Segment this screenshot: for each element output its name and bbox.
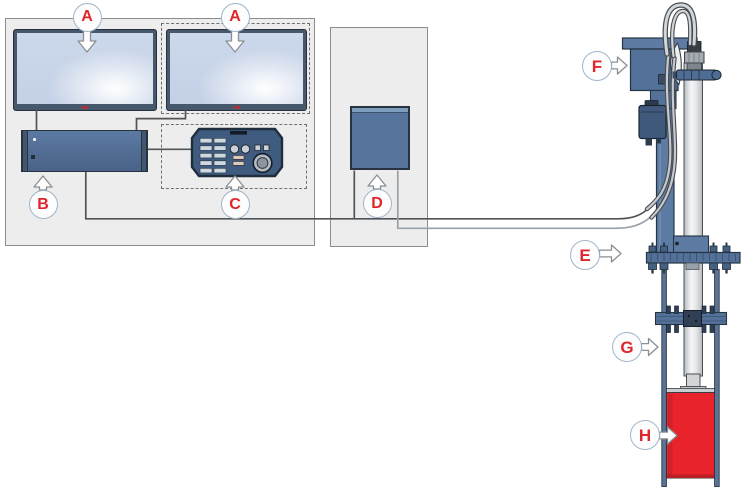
control-box [350, 106, 410, 170]
umbilical-cables [647, 5, 695, 218]
monitor-screen [17, 33, 153, 104]
callout-letter: H [639, 427, 651, 444]
callout-g: G [612, 332, 642, 362]
callout-letter: A [81, 9, 93, 25]
front-port [31, 155, 35, 159]
rack-ear-left [22, 131, 28, 171]
callout-f: F [582, 51, 612, 81]
support-strut [657, 92, 709, 253]
guide-bracket [656, 306, 727, 333]
callout-letter: C [229, 197, 241, 213]
drive-housing [623, 38, 698, 146]
callout-letter: E [579, 247, 590, 264]
monitor-logo-dot [234, 106, 240, 109]
callout-letter: A [229, 9, 241, 25]
rack-ear-right [141, 131, 147, 171]
system-diagram: A A B C D E F G H [0, 0, 750, 490]
arrow-g-right [642, 339, 659, 356]
mounting-flange [647, 243, 741, 274]
callout-a1: A [73, 3, 102, 32]
arrow-f-right [612, 57, 628, 74]
display-monitor-1 [14, 30, 156, 110]
callout-letter: F [592, 58, 602, 75]
guide-rods [662, 270, 719, 487]
cable-guide [671, 43, 682, 85]
mast-connector [685, 42, 705, 71]
callout-letter: D [371, 196, 383, 212]
control-panel-dashed-group [161, 124, 307, 189]
callout-letter: G [620, 339, 633, 356]
callout-a2: A [221, 3, 250, 32]
arrow-h-right [660, 427, 678, 444]
display-monitor-2 [167, 30, 306, 110]
system-unit [21, 130, 148, 172]
probe-mast [681, 63, 707, 391]
arrow-e-right [600, 245, 622, 262]
callout-e: E [570, 240, 600, 270]
callout-letter: B [37, 197, 49, 213]
callout-b: B [29, 190, 58, 219]
monitor-screen [170, 33, 303, 104]
monitor-logo-dot [82, 106, 88, 109]
power-led [33, 138, 36, 141]
callout-h: H [630, 420, 660, 450]
callout-d: D [363, 189, 392, 218]
sensor-cylinder [666, 389, 717, 479]
mast-clamp [673, 70, 722, 80]
control-box-lid-edge [352, 108, 408, 113]
callout-c: C [221, 190, 250, 219]
